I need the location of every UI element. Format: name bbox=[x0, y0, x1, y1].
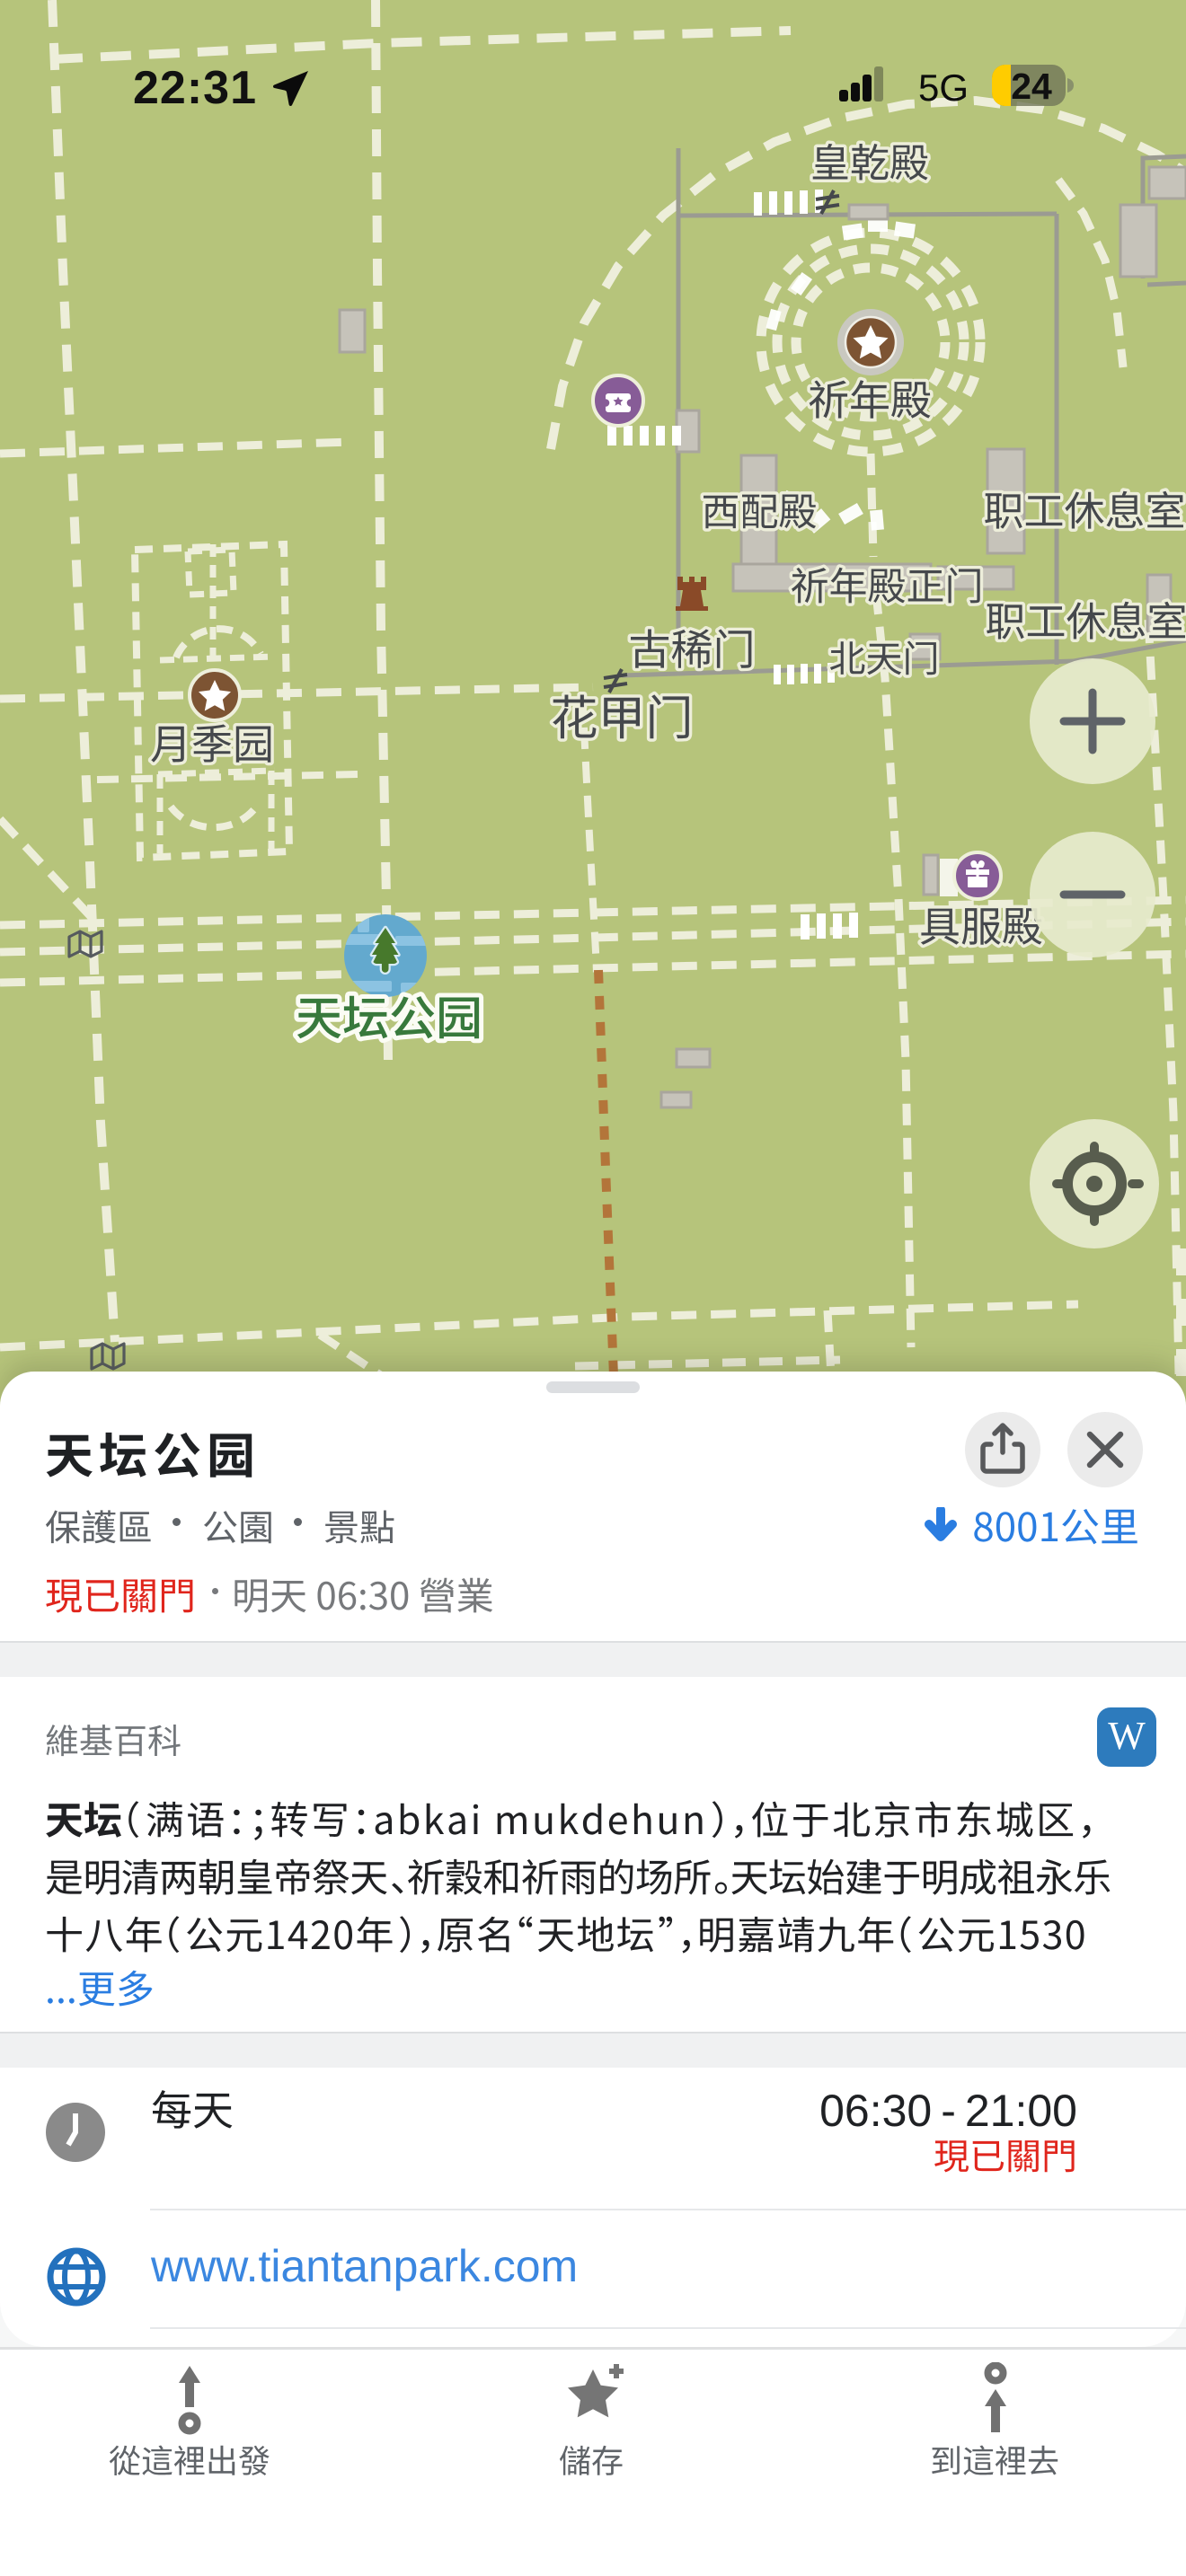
svg-text:W: W bbox=[1108, 1714, 1146, 1758]
svg-text:24: 24 bbox=[1011, 66, 1052, 107]
